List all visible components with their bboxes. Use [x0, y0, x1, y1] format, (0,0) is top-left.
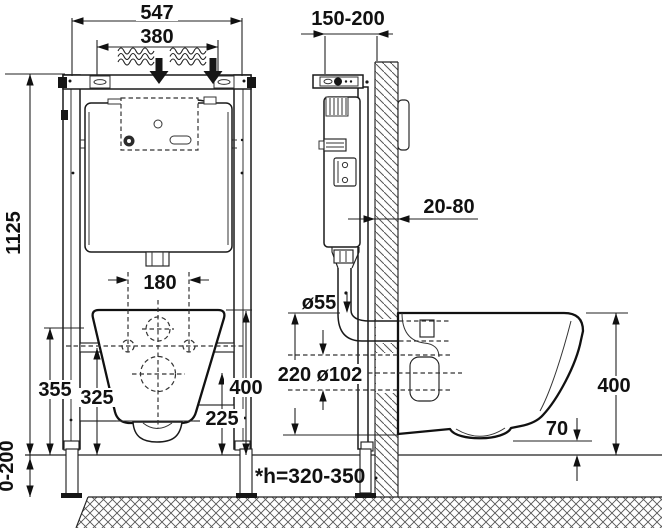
dim-total-height-label: 1125 — [3, 211, 25, 254]
rail-clip-mark — [61, 110, 68, 120]
dim-bowl-height-side-label: 400 — [597, 375, 630, 397]
dim-inlet-span-label: 380 — [140, 26, 173, 48]
connection-zone — [410, 357, 439, 401]
cistern-front — [85, 97, 232, 266]
dim-rail-upper-label: 355 — [38, 379, 71, 401]
ground-hatch — [76, 497, 662, 528]
dim-bowl-top-height-label: 400 — [229, 377, 262, 399]
wall-section — [375, 62, 399, 497]
dim-cladding-range-label: 20-80 — [423, 196, 474, 218]
flush-outlet-stub — [146, 252, 169, 266]
dim-rail-lower-label: 325 — [80, 387, 113, 409]
dim-outlet-center-label: 225 — [205, 408, 238, 430]
dim-feet-range-label: 0-200 — [0, 440, 18, 491]
dim-flush-dia-label: ø55 — [302, 292, 336, 314]
bowl-trap-bump — [133, 422, 182, 442]
frame-top-bar-side — [313, 75, 369, 88]
technical-drawing: 547 380 1125 0-200 355 325 180 225 400 1… — [0, 0, 662, 528]
dim-outer-width-label: 547 — [140, 2, 173, 24]
cistern-side — [319, 97, 360, 268]
dim-outlet-spacing-label: 220 ø102 — [278, 364, 363, 386]
flush-plate-recess — [398, 100, 409, 150]
frame-feet — [61, 441, 257, 498]
dim-feet-range — [26, 455, 33, 497]
seat-fixing — [420, 320, 434, 337]
seat-height-note-label: *h=320-350 — [255, 465, 365, 488]
dim-bolt-span-label: 180 — [143, 272, 176, 294]
dim-depth-range-label: 150-200 — [311, 8, 384, 30]
wall-anchor-dot — [375, 477, 378, 480]
dim-bowl-clearance-label: 70 — [546, 418, 568, 440]
